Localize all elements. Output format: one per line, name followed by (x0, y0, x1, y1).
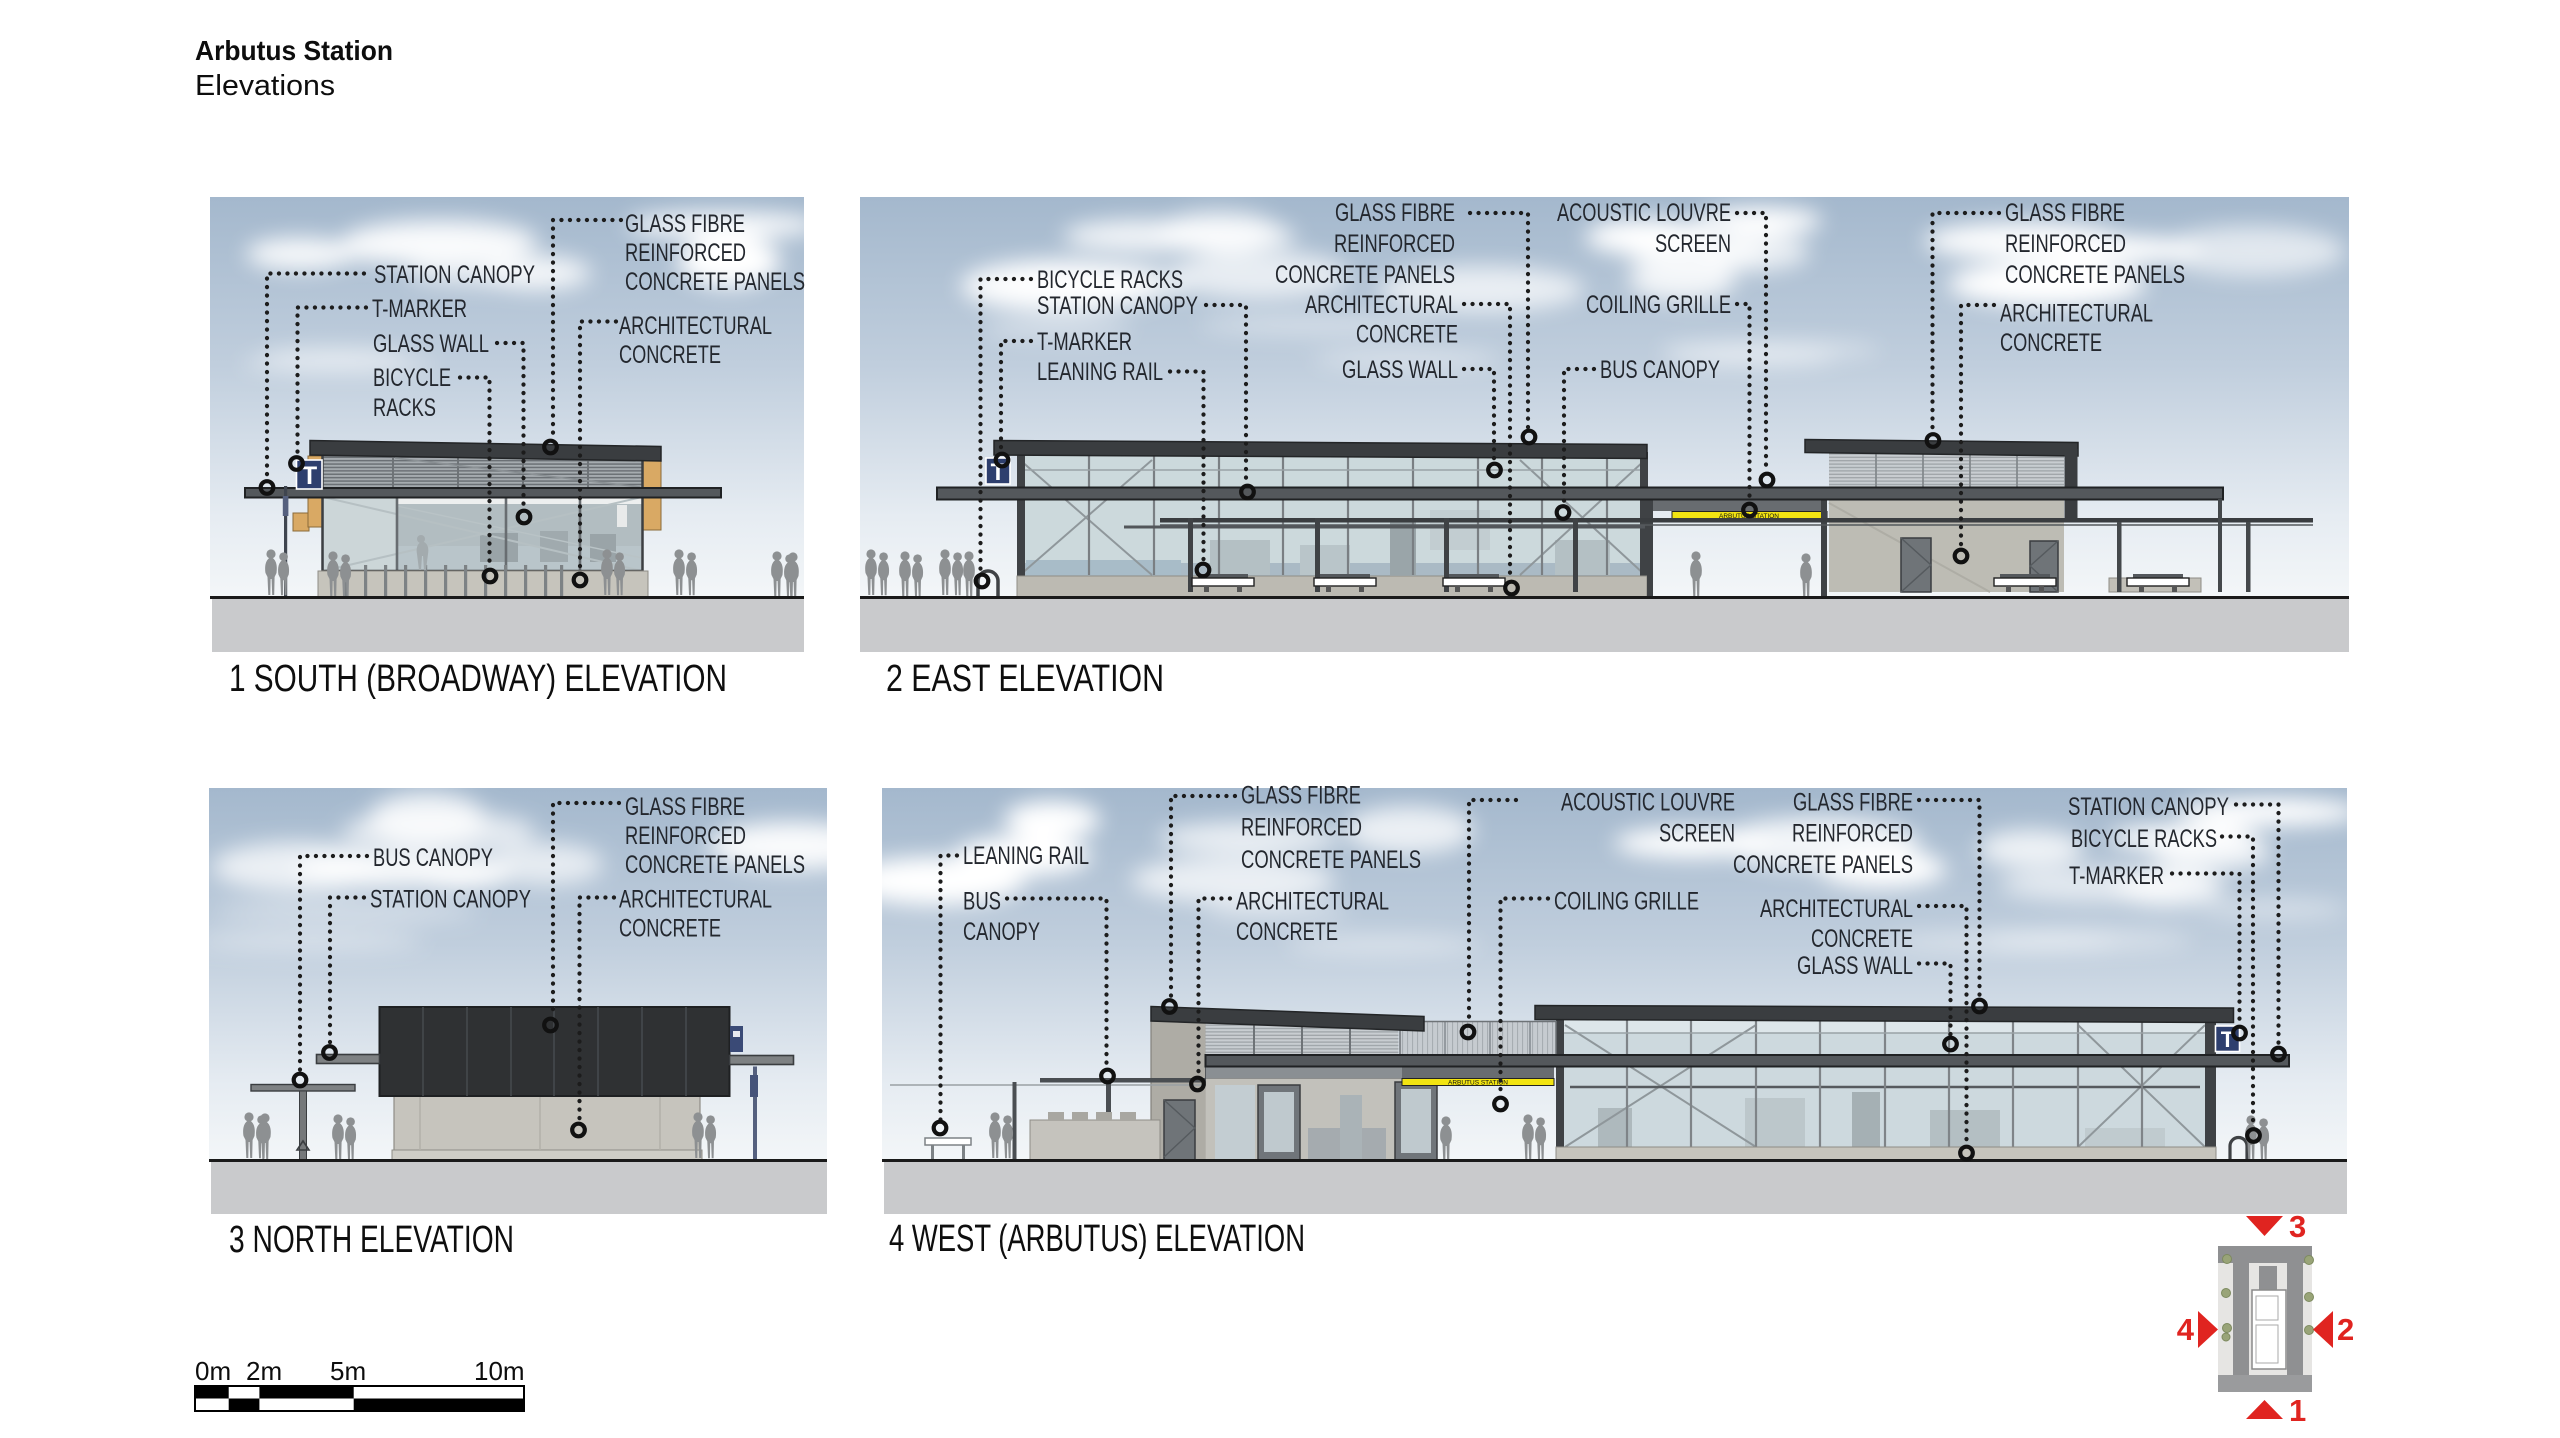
svg-text:COILING GRILLE: COILING GRILLE (1586, 291, 1731, 319)
svg-text:GLASS FIBRE: GLASS FIBRE (625, 793, 745, 821)
svg-text:COILING GRILLE: COILING GRILLE (1554, 888, 1699, 916)
svg-text:ARCHITECTURAL: ARCHITECTURAL (1236, 888, 1389, 916)
svg-text:ARCHITECTURAL: ARCHITECTURAL (619, 312, 772, 340)
svg-text:GLASS FIBRE: GLASS FIBRE (2005, 199, 2125, 227)
svg-text:GLASS FIBRE: GLASS FIBRE (625, 210, 745, 238)
svg-text:LEANING RAIL: LEANING RAIL (1037, 358, 1163, 386)
svg-text:4: 4 (2177, 1312, 2195, 1347)
svg-text:REINFORCED: REINFORCED (1241, 814, 1362, 842)
svg-text:CONCRETE PANELS: CONCRETE PANELS (625, 851, 805, 879)
svg-text:T-MARKER: T-MARKER (372, 295, 467, 323)
svg-text:REINFORCED: REINFORCED (1334, 230, 1455, 258)
svg-text:GLASS WALL: GLASS WALL (1342, 356, 1458, 384)
svg-text:1: 1 (2289, 1393, 2306, 1428)
svg-text:T-MARKER: T-MARKER (1037, 328, 1132, 356)
svg-text:REINFORCED: REINFORCED (625, 822, 746, 850)
svg-text:ARCHITECTURAL: ARCHITECTURAL (2000, 300, 2153, 328)
svg-text:GLASS FIBRE: GLASS FIBRE (1241, 782, 1361, 810)
svg-text:3 NORTH ELEVATION: 3 NORTH ELEVATION (229, 1219, 514, 1261)
svg-text:ACOUSTIC LOUVRE: ACOUSTIC LOUVRE (1561, 789, 1735, 817)
svg-text:1 SOUTH (BROADWAY) ELEVATION: 1 SOUTH (BROADWAY) ELEVATION (229, 658, 727, 700)
svg-text:STATION CANOPY: STATION CANOPY (374, 261, 535, 289)
svg-text:10m: 10m (474, 1356, 525, 1386)
svg-text:REINFORCED: REINFORCED (1792, 820, 1913, 848)
svg-text:Elevations: Elevations (195, 70, 335, 102)
svg-text:ARCHITECTURAL: ARCHITECTURAL (1305, 291, 1458, 319)
svg-text:RACKS: RACKS (373, 394, 436, 422)
svg-text:ARCHITECTURAL: ARCHITECTURAL (1760, 895, 1913, 923)
svg-text:GLASS FIBRE: GLASS FIBRE (1793, 789, 1913, 817)
svg-text:CONCRETE PANELS: CONCRETE PANELS (2005, 261, 2185, 289)
svg-text:CONCRETE PANELS: CONCRETE PANELS (1275, 261, 1455, 289)
svg-text:T-MARKER: T-MARKER (2069, 862, 2164, 890)
svg-text:STATION CANOPY: STATION CANOPY (370, 886, 531, 914)
svg-text:STATION CANOPY: STATION CANOPY (2068, 793, 2229, 821)
svg-text:CONCRETE: CONCRETE (619, 915, 721, 943)
svg-text:ARCHITECTURAL: ARCHITECTURAL (619, 886, 772, 914)
svg-text:SCREEN: SCREEN (1655, 230, 1731, 258)
svg-text:CONCRETE: CONCRETE (1356, 321, 1458, 349)
svg-text:CONCRETE PANELS: CONCRETE PANELS (1241, 846, 1421, 874)
svg-text:ACOUSTIC LOUVRE: ACOUSTIC LOUVRE (1557, 199, 1731, 227)
svg-text:BICYCLE RACKS: BICYCLE RACKS (2071, 825, 2217, 853)
svg-text:2: 2 (2337, 1312, 2354, 1347)
svg-text:SCREEN: SCREEN (1659, 820, 1735, 848)
svg-text:Arbutus Station: Arbutus Station (195, 35, 393, 66)
svg-text:REINFORCED: REINFORCED (625, 239, 746, 267)
svg-text:REINFORCED: REINFORCED (2005, 230, 2126, 258)
svg-text:GLASS WALL: GLASS WALL (373, 330, 489, 358)
svg-text:LEANING RAIL: LEANING RAIL (963, 842, 1089, 870)
svg-text:CONCRETE PANELS: CONCRETE PANELS (1733, 851, 1913, 879)
svg-text:CANOPY: CANOPY (963, 918, 1040, 946)
svg-text:STATION CANOPY: STATION CANOPY (1037, 292, 1198, 320)
svg-text:CONCRETE: CONCRETE (1236, 918, 1338, 946)
svg-text:2m: 2m (246, 1356, 282, 1386)
svg-text:CONCRETE: CONCRETE (2000, 329, 2102, 357)
svg-text:BUS CANOPY: BUS CANOPY (373, 844, 493, 872)
svg-text:BUS CANOPY: BUS CANOPY (1600, 356, 1720, 384)
svg-text:CONCRETE: CONCRETE (1811, 925, 1913, 953)
svg-text:3: 3 (2289, 1209, 2306, 1244)
svg-text:GLASS FIBRE: GLASS FIBRE (1335, 199, 1455, 227)
svg-text:BUS: BUS (963, 888, 1001, 916)
svg-text:BICYCLE: BICYCLE (373, 364, 451, 392)
svg-text:4 WEST (ARBUTUS) ELEVATION: 4 WEST (ARBUTUS) ELEVATION (889, 1218, 1305, 1260)
svg-text:CONCRETE: CONCRETE (619, 341, 721, 369)
svg-text:BICYCLE RACKS: BICYCLE RACKS (1037, 266, 1183, 294)
svg-text:2 EAST ELEVATION: 2 EAST ELEVATION (886, 658, 1164, 700)
svg-text:CONCRETE PANELS: CONCRETE PANELS (625, 268, 805, 296)
svg-text:5m: 5m (330, 1356, 366, 1386)
svg-text:0m: 0m (195, 1356, 231, 1386)
svg-text:GLASS WALL: GLASS WALL (1797, 952, 1913, 980)
